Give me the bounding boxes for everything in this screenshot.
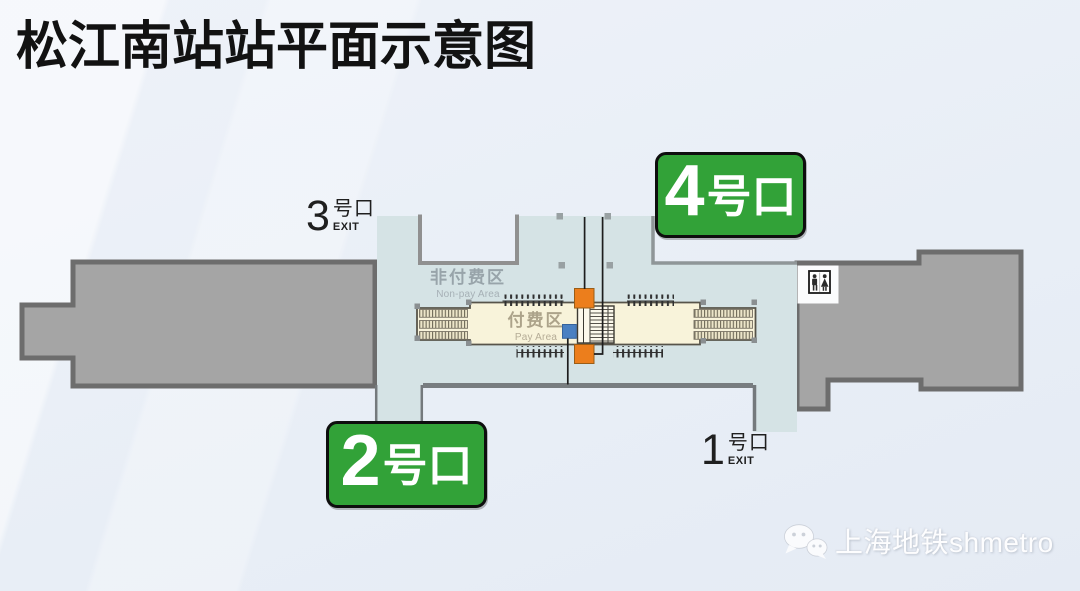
central-stairs-icon <box>578 306 615 343</box>
exit-3-number: 3 <box>306 197 330 237</box>
exit-1-exit-text: EXIT <box>728 455 770 467</box>
fare-gates-top-right <box>627 295 674 307</box>
exit-2-badge: 2 号口 <box>326 421 487 508</box>
pay-area-label-zh: 付费区 <box>500 312 572 331</box>
station-map-graphics <box>0 0 1080 591</box>
exit-2-badge-suffix: 号口 <box>383 443 473 488</box>
fare-gates-bottom-left <box>517 346 565 358</box>
non-pay-area-label: 非付费区 Non-pay Area <box>428 269 508 300</box>
pay-area-label: 付费区 Pay Area <box>500 312 572 343</box>
non-pay-area-label-en: Non-pay Area <box>428 289 508 300</box>
exit-1-label: 1 号口 EXIT <box>701 431 770 471</box>
exit-3-exit-text: EXIT <box>333 221 375 233</box>
station-floor-plan: 松江南站站平面示意图 <box>0 0 1080 591</box>
watermark: 上海地铁shmetro <box>782 521 1054 561</box>
east-escalators-icon <box>694 310 753 340</box>
south-escalator-box <box>575 345 595 364</box>
exit-3-label: 3 号口 EXIT <box>306 197 375 237</box>
restroom-icon <box>798 266 839 304</box>
wechat-icon <box>782 523 828 560</box>
fare-gates-bottom-right <box>613 346 663 358</box>
exit-4-badge-suffix: 号口 <box>707 174 797 219</box>
west-escalators-icon <box>420 310 468 340</box>
exit-1-suffix: 号口 <box>728 433 770 453</box>
watermark-text: 上海地铁shmetro <box>835 521 1054 561</box>
exit-4-badge: 4 号口 <box>655 152 806 238</box>
exit-2-badge-number: 2 <box>340 425 380 497</box>
non-pay-area-label-zh: 非付费区 <box>428 269 508 288</box>
exit-1-number: 1 <box>701 431 725 471</box>
fare-gates-top-left <box>503 295 564 307</box>
north-escalator-box <box>575 289 595 309</box>
west-platform-block <box>22 262 375 386</box>
exit-4-badge-number: 4 <box>664 155 704 227</box>
pay-area-label-en: Pay Area <box>500 332 572 343</box>
exit-3-suffix: 号口 <box>333 199 375 219</box>
concourse-notch-border <box>420 215 517 264</box>
